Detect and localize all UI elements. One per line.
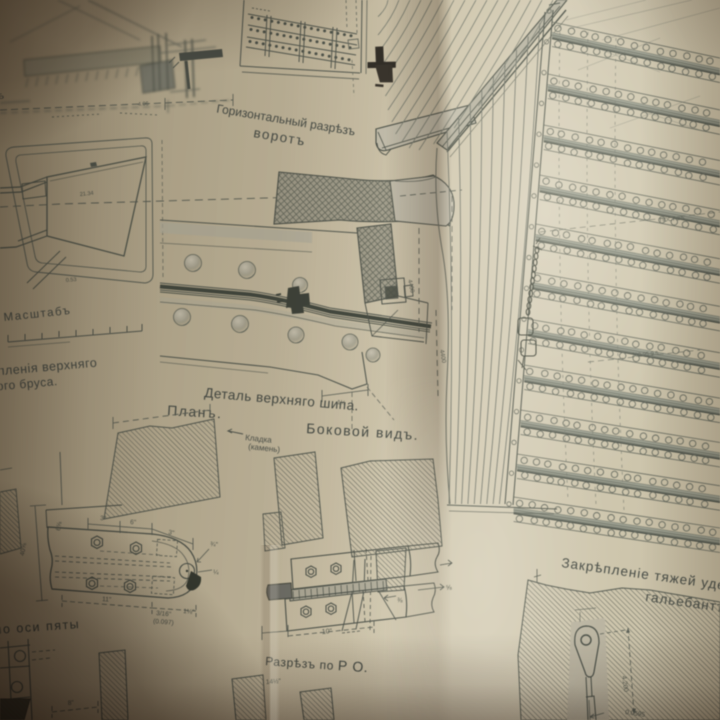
svg-text:(камень): (камень) [248,442,281,454]
svg-text:8": 8" [68,700,75,707]
svg-text:4400: 4400 [406,279,415,294]
svg-text:(0.097): (0.097) [153,618,174,627]
svg-text:Боковой видъ.: Боковой видъ. [306,420,420,443]
svg-text:Масштабъ: Масштабъ [3,305,72,324]
svg-text:Деталь верхняго шипа.: Деталь верхняго шипа. [204,385,360,413]
svg-text:Разрѣзъ по Р О.: Разрѣзъ по Р О. [265,652,369,675]
svg-text:4400: 4400 [438,349,446,364]
svg-text:3": 3" [100,515,107,522]
svg-text:4.06: 4.06 [138,101,149,108]
svg-text:Закрѣпленіе тяжей уде: Закрѣпленіе тяжей уде [561,555,720,593]
svg-text:10": 10" [322,628,333,636]
svg-text:⅝: ⅝ [446,584,453,591]
svg-text:⅜: ⅜ [397,597,404,604]
svg-text:ПОСТ 2.5: ПОСТ 2.5 [660,215,685,224]
svg-text:6": 6" [130,519,137,526]
svg-text:¾": ¾" [210,541,219,549]
svg-text:14½": 14½" [266,677,282,686]
svg-text:1⅛": 1⅛" [183,608,196,616]
svg-text:ѣ: ѣ [0,91,4,102]
svg-text:21.34: 21.34 [80,191,94,198]
svg-text:¼: ¼ [213,569,220,576]
svg-text:3/16": 3/16" [156,610,172,618]
svg-text:3": 3" [168,529,176,537]
svg-text:0.53: 0.53 [66,277,77,284]
svg-text:6⅝: 6⅝ [55,521,64,532]
svg-text:40⅝: 40⅝ [19,542,28,556]
svg-text:11": 11" [102,596,112,604]
svg-text:по оси пяты: по оси пяты [0,617,81,637]
